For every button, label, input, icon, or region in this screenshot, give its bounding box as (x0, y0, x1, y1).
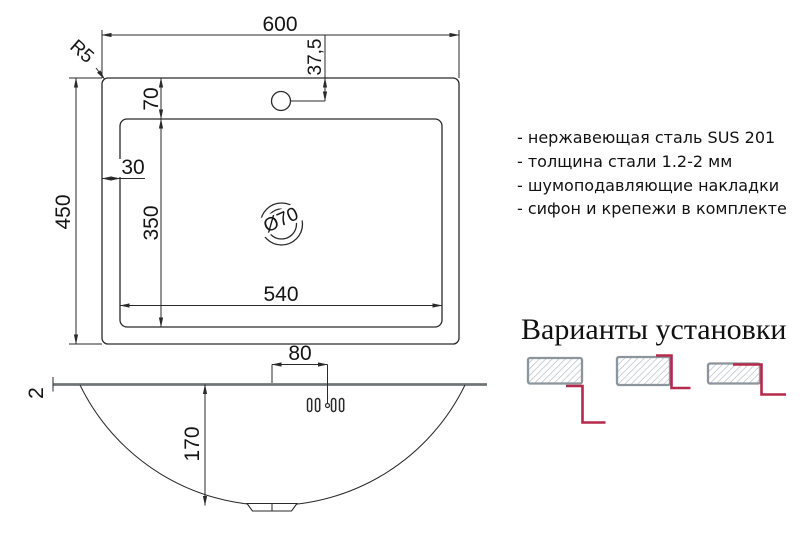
dim-top-offset-label: 70 (140, 87, 163, 110)
countertop-section (528, 358, 582, 384)
dim-height-label: 450 (52, 194, 75, 229)
mount-slot (308, 399, 312, 412)
feature-item: - нержавеющая сталь SUS 201 (517, 126, 797, 150)
corner-radius-leader (96, 68, 105, 79)
section-view: 2 170 80 (25, 342, 487, 511)
faucet-hole (272, 92, 291, 111)
install-option-flush (708, 364, 786, 395)
sink-edge-profile (566, 386, 606, 423)
install-option-undermount (528, 358, 606, 423)
mount-slot (332, 399, 336, 412)
dim-left-offset-label: 30 (121, 156, 144, 179)
dim-depth-label: 170 (181, 426, 204, 461)
dim-bowl-height-label: 350 (140, 205, 163, 240)
install-option-overmount (617, 356, 691, 389)
countertop-section (617, 357, 670, 385)
dim-bowl-width-label: 540 (263, 283, 298, 306)
dim-width-label: 600 (262, 13, 297, 36)
mount-slot (340, 399, 344, 412)
rim-thickness-label: 2 (25, 387, 48, 399)
dim-faucet-pos-label: 80 (288, 342, 311, 365)
feature-item: - шумоподавляющие накладки (517, 174, 797, 198)
drain-label-group: Ø70 (254, 200, 309, 240)
feature-item: - толщина стали 1.2-2 мм (517, 150, 797, 174)
mount-slot (316, 399, 320, 412)
bowl-profile-curve (80, 385, 465, 506)
corner-radius-label: R5 (66, 36, 98, 68)
dim-faucet-offset-label: 37,5 (305, 39, 326, 76)
feature-item: - сифон и крепежи в комплекте (517, 197, 797, 221)
features-list: - нержавеющая сталь SUS 201 - толщина ст… (517, 126, 797, 221)
countertop-section (708, 364, 760, 384)
install-options-title: Варианты установки (521, 313, 796, 347)
technical-drawing: 37,5 600 450 70 350 30 540 (0, 0, 800, 533)
install-options (528, 356, 786, 423)
sink-technical-drawing-page: 37,5 600 450 70 350 30 540 (0, 0, 800, 533)
faucet-center-dot (326, 404, 330, 408)
plan-view: 37,5 600 450 70 350 30 540 (52, 13, 459, 344)
